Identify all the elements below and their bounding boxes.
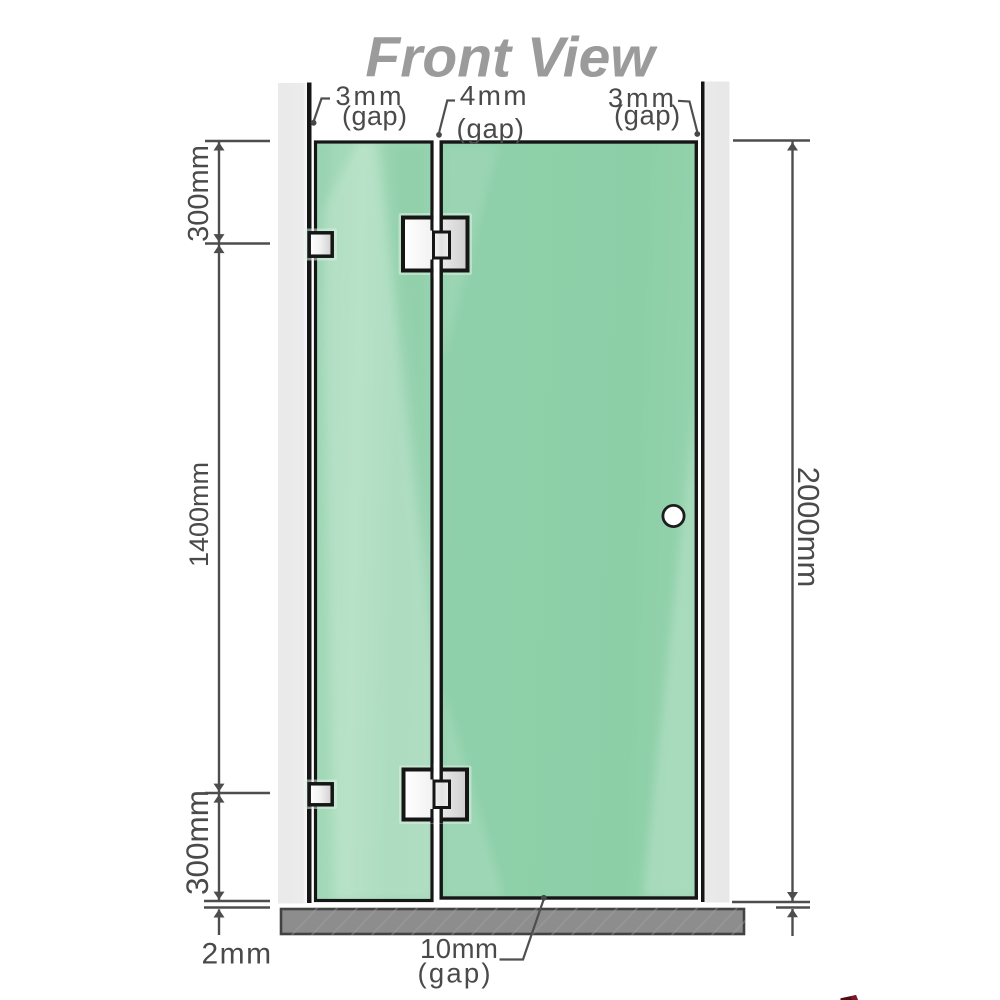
svg-text:300mm: 300mm xyxy=(183,145,215,242)
svg-text:(gap): (gap) xyxy=(418,958,493,989)
svg-text:(gap): (gap) xyxy=(614,100,681,131)
svg-text:4mm: 4mm xyxy=(460,80,529,111)
svg-text:(gap): (gap) xyxy=(457,113,525,144)
svg-text:1400mm: 1400mm xyxy=(184,462,214,567)
svg-text:2mm: 2mm xyxy=(202,938,273,971)
svg-text:2000mm: 2000mm xyxy=(791,467,826,588)
svg-text:(gap): (gap) xyxy=(342,101,408,131)
svg-text:300mm: 300mm xyxy=(179,790,215,895)
